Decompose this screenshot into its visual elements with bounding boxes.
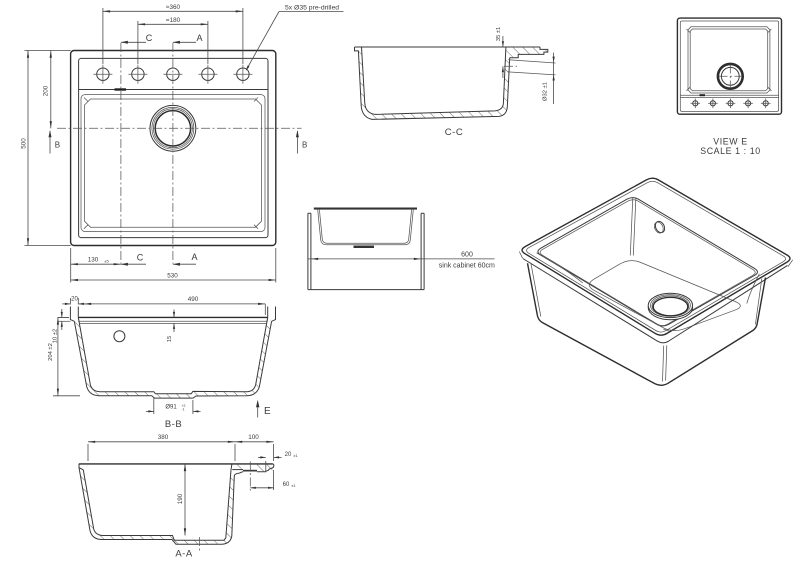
svg-text:±1: ±1 bbox=[293, 453, 298, 458]
svg-text:20: 20 bbox=[71, 297, 78, 303]
svg-text:SCALE 1 : 10: SCALE 1 : 10 bbox=[700, 146, 761, 156]
svg-text:C: C bbox=[146, 33, 153, 43]
svg-text:C: C bbox=[137, 253, 144, 263]
svg-text:5x Ø35 pre-drilled: 5x Ø35 pre-drilled bbox=[285, 5, 339, 12]
svg-text:Ø91: Ø91 bbox=[165, 405, 177, 411]
svg-text:15: 15 bbox=[167, 336, 173, 342]
svg-text:500: 500 bbox=[21, 138, 28, 149]
svg-text:100: 100 bbox=[248, 434, 259, 441]
svg-text:-1: -1 bbox=[182, 408, 185, 412]
svg-text:A: A bbox=[191, 252, 197, 262]
svg-text:VIEW E: VIEW E bbox=[713, 137, 747, 147]
svg-text:≈360: ≈360 bbox=[166, 4, 180, 11]
svg-text:sink cabinet 60cm: sink cabinet 60cm bbox=[439, 263, 495, 270]
svg-text:A-A: A-A bbox=[175, 549, 193, 560]
svg-text:60: 60 bbox=[283, 482, 290, 488]
svg-text:B: B bbox=[302, 141, 307, 150]
svg-text:200: 200 bbox=[43, 85, 50, 96]
svg-text:35 ±1: 35 ±1 bbox=[496, 27, 502, 41]
svg-text:=180: =180 bbox=[166, 17, 181, 24]
svg-text:C-C: C-C bbox=[445, 127, 463, 138]
svg-text:490: 490 bbox=[188, 296, 199, 303]
svg-text:±5: ±5 bbox=[104, 258, 109, 263]
svg-text:Ø32 ±1: Ø32 ±1 bbox=[543, 82, 549, 101]
svg-text:380: 380 bbox=[158, 434, 169, 441]
svg-text:B-B: B-B bbox=[165, 419, 182, 430]
svg-text:130: 130 bbox=[88, 256, 99, 263]
svg-text:530: 530 bbox=[167, 273, 178, 280]
svg-text:A: A bbox=[196, 33, 202, 43]
svg-text:600: 600 bbox=[461, 252, 473, 259]
svg-text:204 ±2: 204 ±2 bbox=[48, 343, 54, 361]
svg-text:±1: ±1 bbox=[291, 483, 296, 488]
svg-text:B: B bbox=[55, 141, 60, 150]
svg-text:E: E bbox=[264, 406, 271, 417]
svg-text:190: 190 bbox=[177, 493, 184, 504]
svg-text:20: 20 bbox=[285, 452, 292, 458]
